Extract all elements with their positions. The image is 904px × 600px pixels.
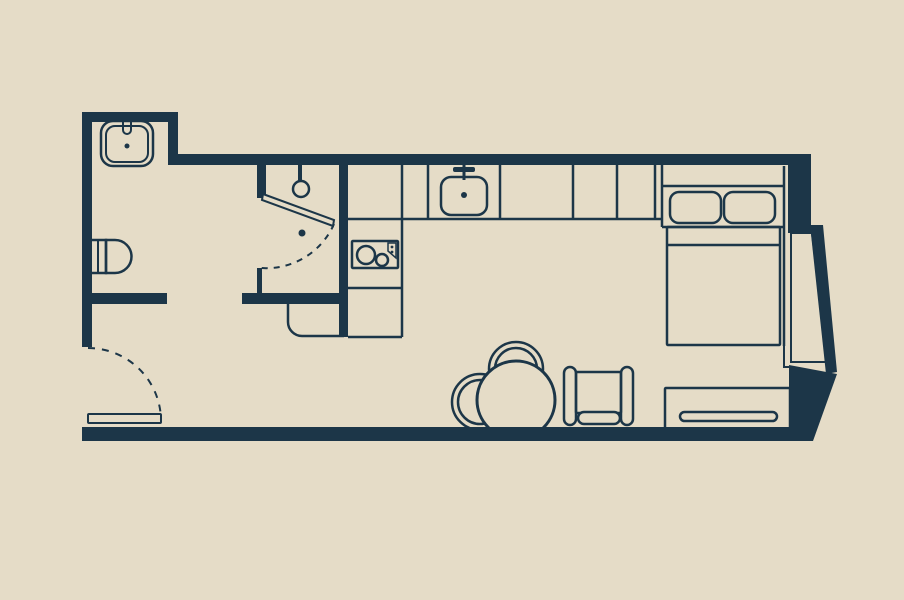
dresser (665, 388, 790, 429)
shower-head (293, 181, 309, 197)
wall-bathroom-shower (257, 164, 266, 198)
floor-plan-svg (0, 0, 904, 600)
wall-shower-kitchen (339, 164, 348, 337)
cooktop-control-dot-2 (391, 251, 394, 254)
kitchen-faucet-bar (453, 167, 475, 172)
wall-hall-stub-east (242, 293, 339, 304)
armchair-seat (576, 372, 621, 413)
wall-right-bottom-corner (789, 365, 837, 441)
wall-bathroom-top (82, 112, 178, 122)
cooktop-control-dot-1 (391, 246, 394, 249)
pillow-right (724, 192, 775, 223)
wall-hall-stub-west (85, 293, 167, 304)
armchair-front-cushion (578, 412, 620, 424)
wall-window-slant (810, 225, 837, 374)
bathroom-sink-drain (125, 144, 130, 149)
wall-top-main (168, 154, 811, 165)
wall-bottom (82, 427, 812, 441)
dresser-handle (680, 412, 777, 421)
entry-door-swing-arc (88, 348, 161, 421)
wall-left (82, 112, 92, 347)
toilet-bowl (106, 240, 132, 273)
wall-right-top-corner (788, 154, 811, 233)
cooktop-control-panel (388, 243, 396, 258)
entry-door-leaf (88, 414, 161, 423)
armchair-left-armrest (564, 367, 576, 425)
hall-cabinet (288, 304, 344, 336)
shower-door-swing-arc (261, 224, 334, 268)
kitchen-sink-drain (461, 192, 467, 198)
wall-shower-stub (257, 268, 262, 295)
floor-plan (0, 0, 904, 600)
shower-door-handle (299, 230, 306, 237)
shower-door-leaf (262, 194, 334, 226)
cooktop-burner-small (376, 254, 388, 266)
bed-foot-step (784, 346, 791, 367)
pillow-left (670, 192, 721, 223)
armchair-right-armrest (621, 367, 633, 425)
cooktop-burner-large (357, 246, 375, 264)
